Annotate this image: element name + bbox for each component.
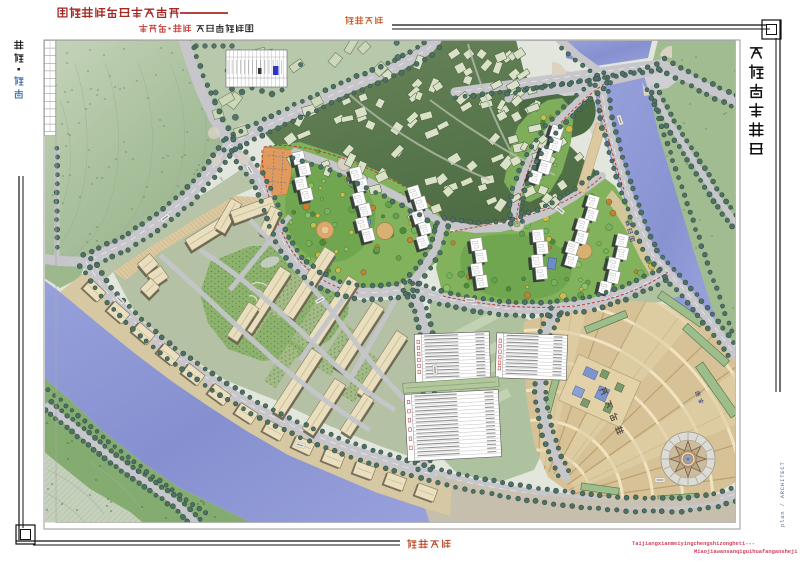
svg-text:plan / ARCHITECT: plan / ARCHITECT — [779, 461, 786, 527]
svg-text:Miaojiawansanqiguihuafanganshe: Miaojiawansanqiguihuafangansheji — [694, 549, 798, 555]
svg-text:Taijiangxianmeiyingchengshizon: Taijiangxianmeiyingchengshizongheti--- — [632, 541, 755, 547]
